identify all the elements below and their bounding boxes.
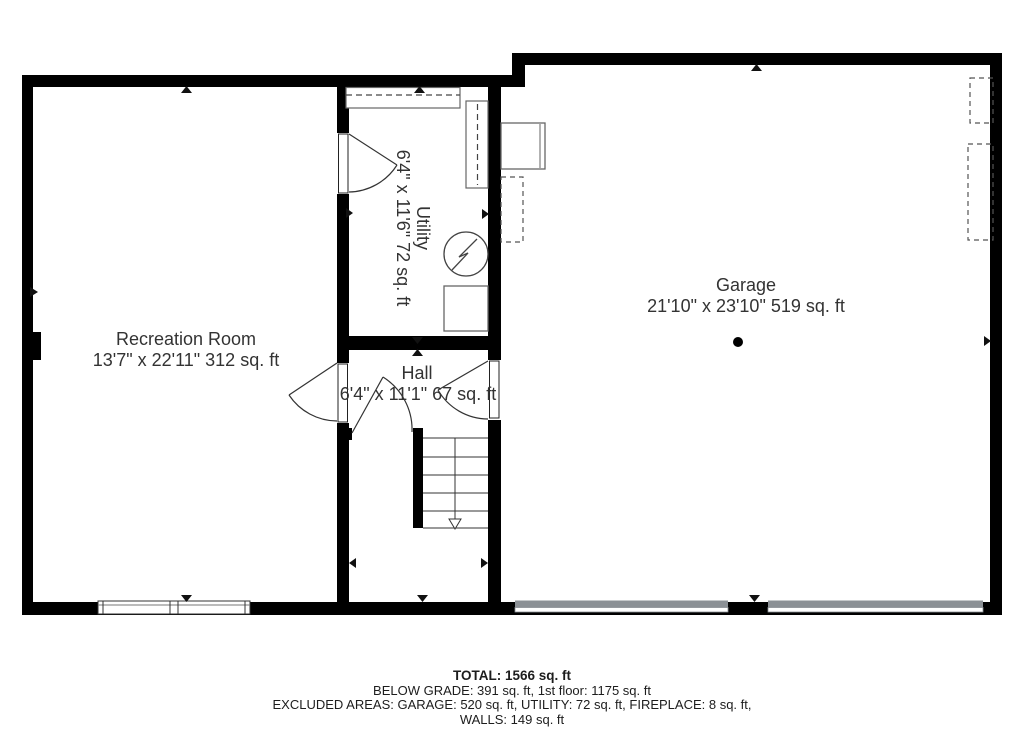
area-summary: TOTAL: 1566 sq. ft BELOW GRADE: 391 sq. … <box>0 669 1024 727</box>
marker-rec-top-icon <box>181 86 192 93</box>
garage-wall-fixture <box>501 123 545 169</box>
wall-top-left-section <box>22 75 525 87</box>
garage-floor-dot <box>733 337 743 347</box>
garage-dashed-fixture-left <box>501 177 523 242</box>
marker-garage-top-icon <box>751 64 762 71</box>
utility-dims: 6'4" x 11'6" 72 sq. ft <box>393 150 413 306</box>
wall-hall-bottom <box>337 428 352 440</box>
garage-dims: 21'10" x 23'10" 519 sq. ft <box>647 296 845 316</box>
utility-door <box>339 134 398 193</box>
hall-label: Hall <box>401 363 432 383</box>
marker-stair-bottom-icon <box>417 595 428 602</box>
garage-door-left <box>515 601 728 608</box>
wall-stair-left <box>413 428 423 528</box>
marker-garage-bottom-icon <box>749 595 760 602</box>
floor-plan-drawing: Recreation Room 13'7" x 22'11" 312 sq. f… <box>0 0 1024 738</box>
hall-recroom-door-swing-arc <box>289 395 337 421</box>
garage-door-right-stripe <box>768 608 983 613</box>
marker-stair-left-icon <box>349 558 356 568</box>
below-grade-text: BELOW GRADE: 391 sq. ft, 1st floor: 1175… <box>0 684 1024 699</box>
garage-door-left-stripe <box>515 608 728 613</box>
utility-door-leaf <box>349 134 397 165</box>
hall-dims: 6'4" x 11'1" 67 sq. ft <box>340 384 496 404</box>
marker-hall-top-up-icon <box>412 349 423 356</box>
marker-stair-right-icon <box>481 558 488 568</box>
wall-hall-garage-b <box>488 420 501 602</box>
garage-label: Garage <box>716 275 776 295</box>
floor-plan-page: Recreation Room 13'7" x 22'11" 312 sq. f… <box>0 0 1024 738</box>
excluded-areas-text: EXCLUDED AREAS: GARAGE: 520 sq. ft, UTIL… <box>0 698 1024 713</box>
garage-dashed-storage-1 <box>970 78 993 123</box>
marker-utility-left-icon <box>346 208 353 218</box>
garage-door-right <box>768 601 983 608</box>
utility-door-leaf-panel <box>339 134 349 193</box>
recroom-window-frame <box>98 601 250 614</box>
marker-utility-right-icon <box>482 209 489 219</box>
recroom-window <box>98 601 250 614</box>
walls-area-text: WALLS: 149 sq. ft <box>0 713 1024 728</box>
utility-counter <box>346 88 460 109</box>
utility-furnace <box>444 286 488 331</box>
marker-rec-left-icon <box>30 287 38 297</box>
fireplace <box>33 332 41 360</box>
utility-door-swing-arc <box>349 165 397 192</box>
hall-recroom-door-leaf <box>289 363 337 395</box>
garage-dashed-storage-2 <box>968 144 993 240</box>
staircase <box>423 438 488 529</box>
utility-label: Utility <box>413 206 433 250</box>
wall-top-garage <box>512 53 1002 65</box>
wall-right <box>990 53 1002 615</box>
recroom-label: Recreation Room <box>116 329 256 349</box>
wall-rec-utility-c <box>337 423 349 602</box>
total-area-text: TOTAL: 1566 sq. ft <box>0 669 1024 684</box>
hall-recroom-door <box>289 363 348 422</box>
recroom-dims: 13'7" x 22'11" 312 sq. ft <box>93 350 279 370</box>
wall-left <box>22 75 33 615</box>
marker-garage-right-icon <box>984 336 991 346</box>
wall-hall-garage-a <box>488 87 501 360</box>
